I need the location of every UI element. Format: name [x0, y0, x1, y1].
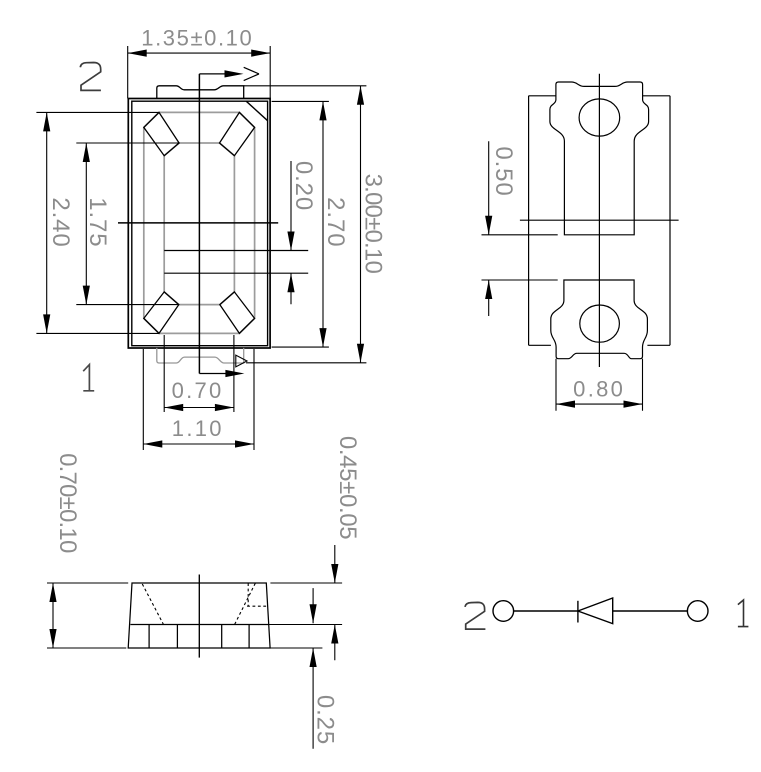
svg-text:0.80: 0.80 — [573, 377, 625, 402]
svg-text:0.70: 0.70 — [172, 378, 224, 403]
svg-text:2.40: 2.40 — [47, 197, 74, 247]
svg-text:2.70: 2.70 — [322, 197, 349, 247]
svg-text:0.70±0.10: 0.70±0.10 — [54, 453, 81, 553]
svg-text:1.35±0.10: 1.35±0.10 — [141, 26, 253, 51]
svg-text:0.25: 0.25 — [312, 695, 339, 745]
svg-text:3.00±0.10: 3.00±0.10 — [360, 174, 387, 274]
svg-text:0.45±0.05: 0.45±0.05 — [334, 436, 361, 539]
svg-text:1.75: 1.75 — [84, 197, 111, 247]
svg-text:0.50: 0.50 — [490, 146, 517, 196]
svg-text:0.20: 0.20 — [290, 161, 317, 211]
svg-text:1.10: 1.10 — [172, 416, 224, 441]
